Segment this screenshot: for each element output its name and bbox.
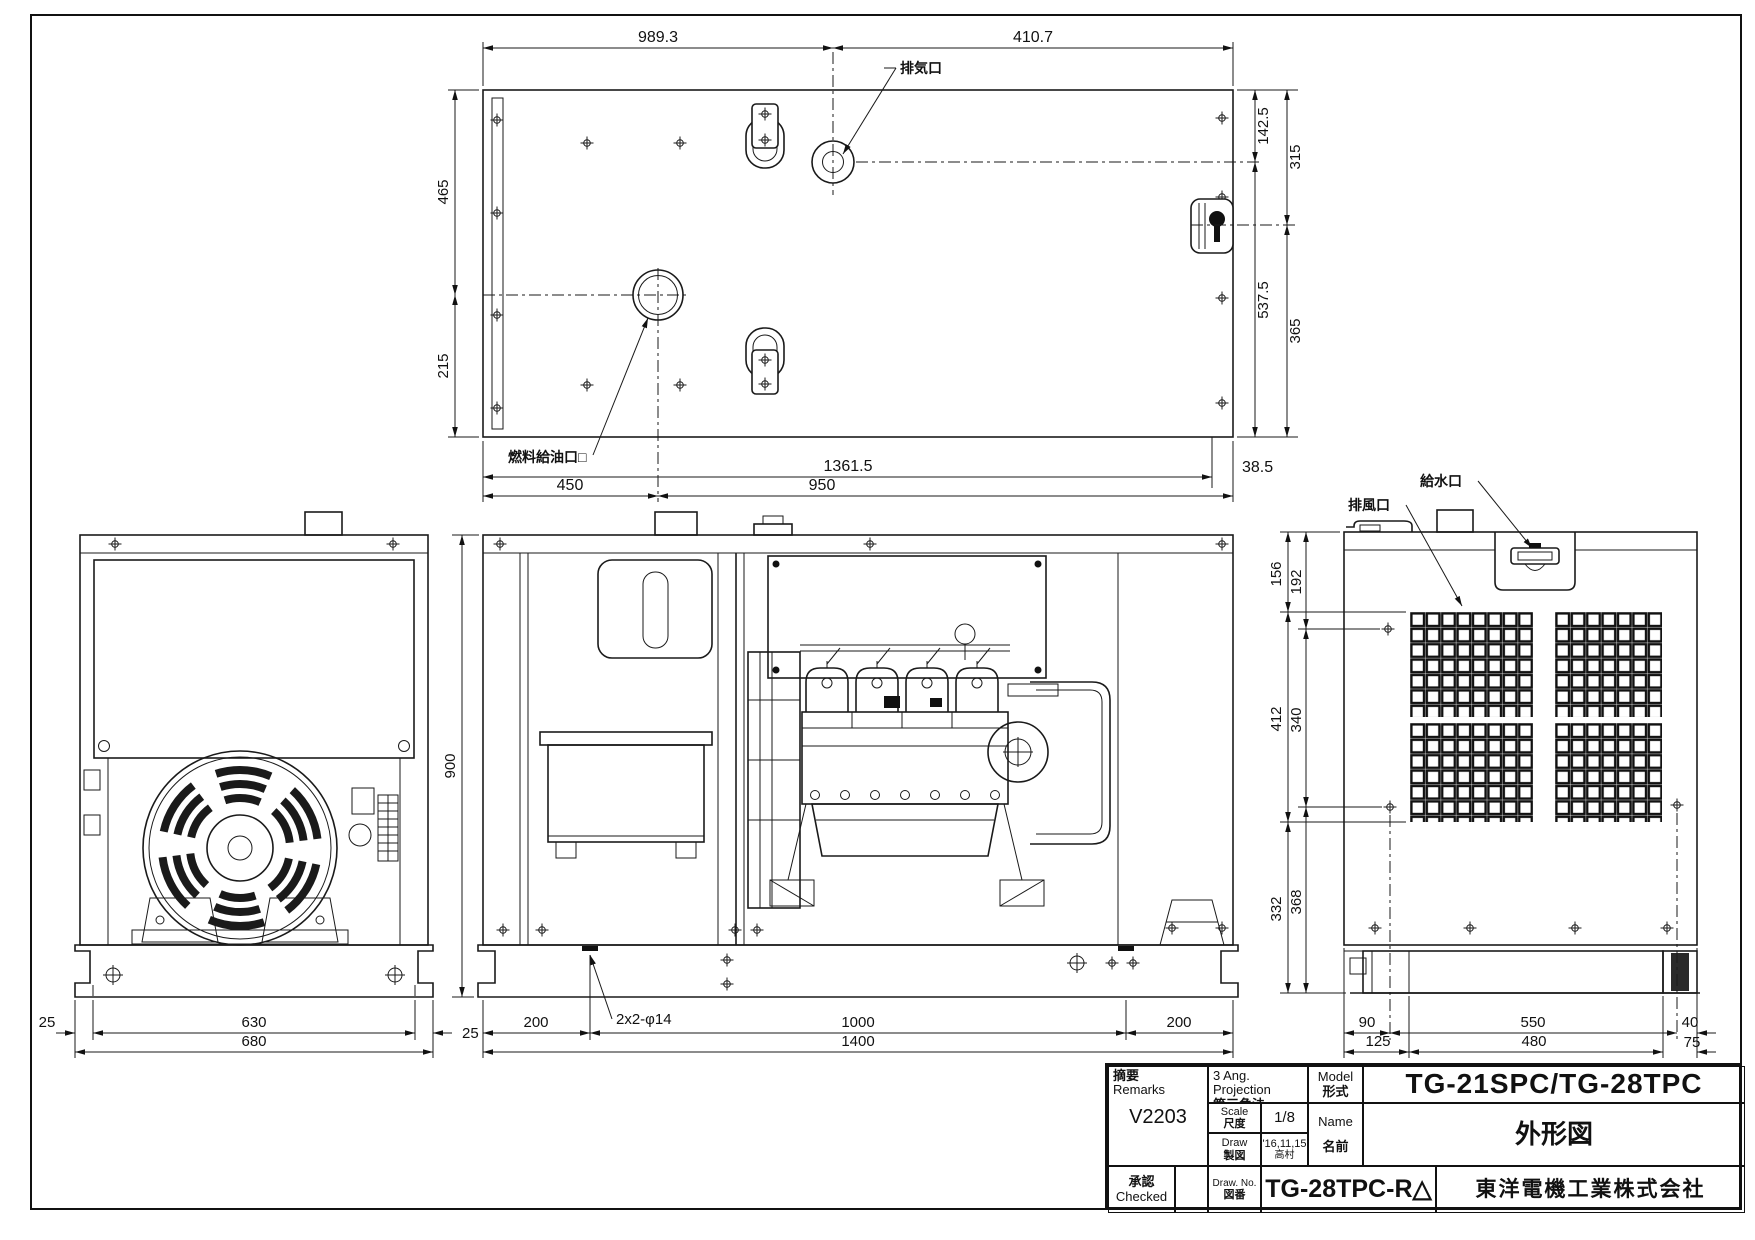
dim-label: 630 — [241, 1014, 266, 1031]
drawing-canvas: 排気口 燃料給油口□ — [0, 0, 1755, 1240]
dim-label: 480 — [1521, 1033, 1546, 1050]
terminal-strip — [378, 795, 398, 861]
dim-label: 368 — [1288, 889, 1305, 914]
scale-value-cell: 1/8 — [1261, 1103, 1308, 1133]
dim-label: 25 — [39, 1014, 56, 1031]
exhaust-port-callout: 排気口 — [843, 60, 942, 154]
scale-label-cell: Scale 尺度 — [1208, 1103, 1261, 1133]
dim-label: 1361.5 — [824, 458, 873, 475]
dim-label: 465 — [435, 179, 452, 204]
dim-label: 200 — [523, 1014, 548, 1031]
approval-label-jp: 承認 — [1128, 1175, 1154, 1189]
air-outlet-callout: 排風口 — [1348, 497, 1462, 606]
dim-label: 680 — [241, 1033, 266, 1050]
company-cell: 東洋電機工業株式会社 — [1436, 1166, 1745, 1213]
dim-label: 90 — [1359, 1014, 1376, 1031]
drawing-sheet: 排気口 燃料給油口□ — [0, 0, 1755, 1240]
title-block: 摘要 Remarks V2203 承認 Checked 3 Ang. Proje… — [1105, 1063, 1742, 1210]
dim-label: 125 — [1365, 1033, 1390, 1050]
dim-label: 38.5 — [1242, 459, 1273, 476]
exhaust-port — [812, 52, 1262, 195]
fuel-filler-label: 燃料給油口□ — [508, 449, 587, 465]
name-label-en: Name — [1318, 1115, 1353, 1129]
latch-detail — [1191, 199, 1298, 253]
lifting-eye-top — [746, 104, 784, 168]
engine — [748, 624, 1110, 908]
front-view-dimensions: 900 200 1000 200 1400 2x2-φ14 — [442, 535, 1233, 1058]
draw-by: 高村 — [1275, 1150, 1295, 1161]
battery-box — [540, 732, 712, 858]
base-holes-label: 2x2-φ14 — [616, 1011, 672, 1028]
right-side-view: 給水口 排風口 — [1268, 473, 1716, 1058]
top-view: 排気口 燃料給油口□ — [435, 29, 1304, 502]
approval-cell: 承認 Checked — [1108, 1166, 1175, 1213]
name-value-cell: 外形図 — [1363, 1103, 1745, 1166]
top-view-dimensions: 989.3 410.7 465 215 142.5 537.5 315 — [435, 29, 1304, 502]
lifting-eye-bottom — [746, 328, 784, 394]
dim-label: 1000 — [841, 1014, 874, 1031]
generator-end — [132, 751, 398, 945]
scale-label-jp: 尺度 — [1224, 1118, 1246, 1130]
dim-label: 200 — [1166, 1014, 1191, 1031]
right-view-vertical-dimensions: 156 412 332 192 340 368 — [1268, 532, 1406, 993]
model-label-en: Model — [1318, 1070, 1353, 1084]
draw-label-cell: Draw 製図 — [1208, 1133, 1261, 1166]
dim-label: 340 — [1288, 707, 1305, 732]
name-label-jp: 名前 — [1322, 1140, 1348, 1154]
draw-label-jp: 製図 — [1224, 1150, 1246, 1162]
dim-label: 537.5 — [1255, 281, 1272, 319]
scale-label-en: Scale — [1221, 1106, 1249, 1118]
exhaust-port-label: 排気口 — [900, 60, 942, 76]
left-view-dimensions: 25 630 25 680 — [39, 1000, 479, 1058]
dim-label: 40 — [1682, 1014, 1699, 1031]
dim-label: 156 — [1268, 561, 1285, 586]
dim-label: 315 — [1287, 144, 1304, 169]
dim-label: 450 — [557, 477, 584, 494]
name-label-cell: Name 名前 — [1308, 1103, 1363, 1166]
right-view-bottom-dimensions: 90 550 40 125 480 75 — [1344, 813, 1716, 1058]
left-side-view: 25 630 25 680 — [39, 512, 479, 1058]
draw-label-en: Draw — [1222, 1137, 1248, 1149]
front-view: 900 200 1000 200 1400 2x2-φ14 — [442, 512, 1238, 1058]
dim-label: 332 — [1268, 896, 1285, 921]
dim-label: 1400 — [841, 1033, 874, 1050]
water-inlet-label: 給水口 — [1420, 473, 1462, 489]
remarks-value: V2203 — [1113, 1106, 1203, 1128]
remarks-cell: 摘要 Remarks V2203 — [1108, 1066, 1208, 1166]
approval-sign-cell — [1175, 1166, 1208, 1213]
remarks-label-jp: 摘要 — [1113, 1069, 1139, 1083]
model-value-cell: TG-21SPC/TG-28TPC — [1363, 1066, 1745, 1103]
drawno-value: TG-28TPC-R — [1265, 1176, 1412, 1204]
revision-triangle: △ — [1413, 1176, 1432, 1204]
dim-label: 950 — [809, 477, 836, 494]
drawno-value-cell: TG-28TPC-R △ — [1261, 1166, 1436, 1213]
air-outlet-label: 排風口 — [1348, 497, 1390, 513]
dim-label: 900 — [442, 753, 459, 778]
dim-label: 412 — [1268, 706, 1285, 731]
draw-date: '16,11,15 — [1262, 1138, 1306, 1150]
dim-label: 25 — [462, 1025, 479, 1042]
projection-label-en: 3 Ang. Projection — [1213, 1069, 1303, 1098]
projection-cell: 3 Ang. Projection 第三角法 — [1208, 1066, 1308, 1103]
remarks-label-en: Remarks — [1113, 1083, 1165, 1097]
upper-right-panel — [768, 556, 1046, 678]
water-filler — [1495, 532, 1575, 590]
draw-value-cell: '16,11,15 高村 — [1261, 1133, 1308, 1166]
drawno-label-jp: 図番 — [1224, 1189, 1246, 1201]
dim-label: 215 — [435, 353, 452, 378]
dim-label: 142.5 — [1255, 107, 1272, 145]
drawno-label-en: Draw. No. — [1213, 1178, 1257, 1189]
dim-label: 989.3 — [638, 29, 678, 46]
drawno-label-cell: Draw. No. 図番 — [1208, 1166, 1261, 1213]
dim-label: 192 — [1288, 569, 1305, 594]
dim-label: 75 — [1684, 1034, 1701, 1051]
model-label-jp: 形式 — [1322, 1085, 1348, 1099]
dim-label: 365 — [1287, 318, 1304, 343]
approval-label-en: Checked — [1116, 1190, 1167, 1204]
exhaust-grille — [1410, 612, 1662, 822]
model-label-cell: Model 形式 — [1308, 1066, 1363, 1103]
dim-label: 410.7 — [1013, 29, 1053, 46]
dim-label: 550 — [1520, 1014, 1545, 1031]
fuel-filler-callout: 燃料給油口□ — [508, 318, 648, 465]
